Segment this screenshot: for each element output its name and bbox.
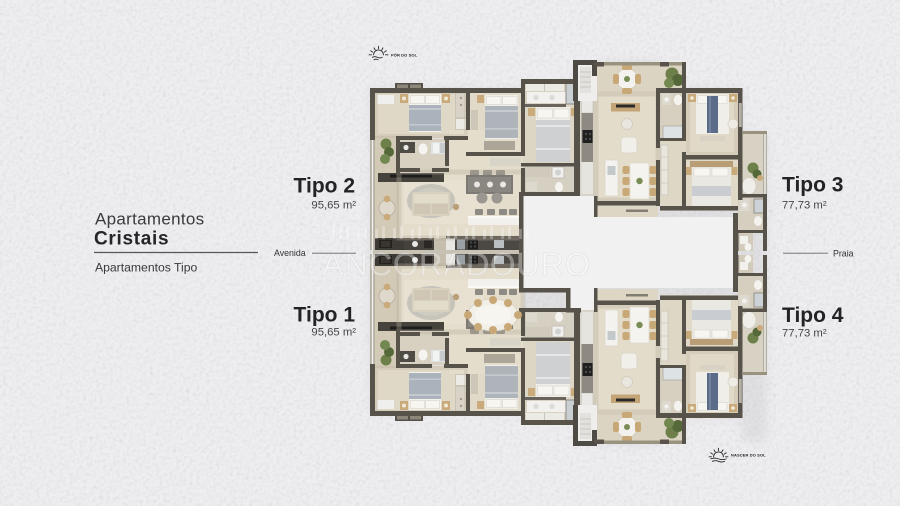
svg-text:PÔR DO SOL: PÔR DO SOL: [391, 53, 418, 58]
svg-text:95,65 m²: 95,65 m²: [311, 327, 356, 339]
svg-text:NASCER DO SOL: NASCER DO SOL: [731, 453, 766, 458]
svg-text:Cristais: Cristais: [94, 229, 169, 250]
svg-text:Tipo 4: Tipo 4: [782, 304, 844, 327]
svg-text:ANCORADOURO: ANCORADOURO: [322, 247, 591, 283]
svg-text:77,73 m²: 77,73 m²: [782, 200, 827, 212]
svg-text:Tipo 3: Tipo 3: [782, 174, 843, 197]
svg-text:Apartamentos Tipo: Apartamentos Tipo: [95, 261, 198, 275]
svg-text:Apartamentos: Apartamentos: [95, 210, 204, 229]
svg-text:Tipo 2: Tipo 2: [294, 175, 355, 198]
svg-text:Tipo 1: Tipo 1: [294, 304, 356, 327]
svg-text:Praia: Praia: [833, 249, 854, 259]
svg-text:95,65 m²: 95,65 m²: [311, 199, 356, 211]
svg-text:Avenida: Avenida: [274, 248, 306, 258]
svg-text:77,73 m²: 77,73 m²: [782, 327, 827, 339]
